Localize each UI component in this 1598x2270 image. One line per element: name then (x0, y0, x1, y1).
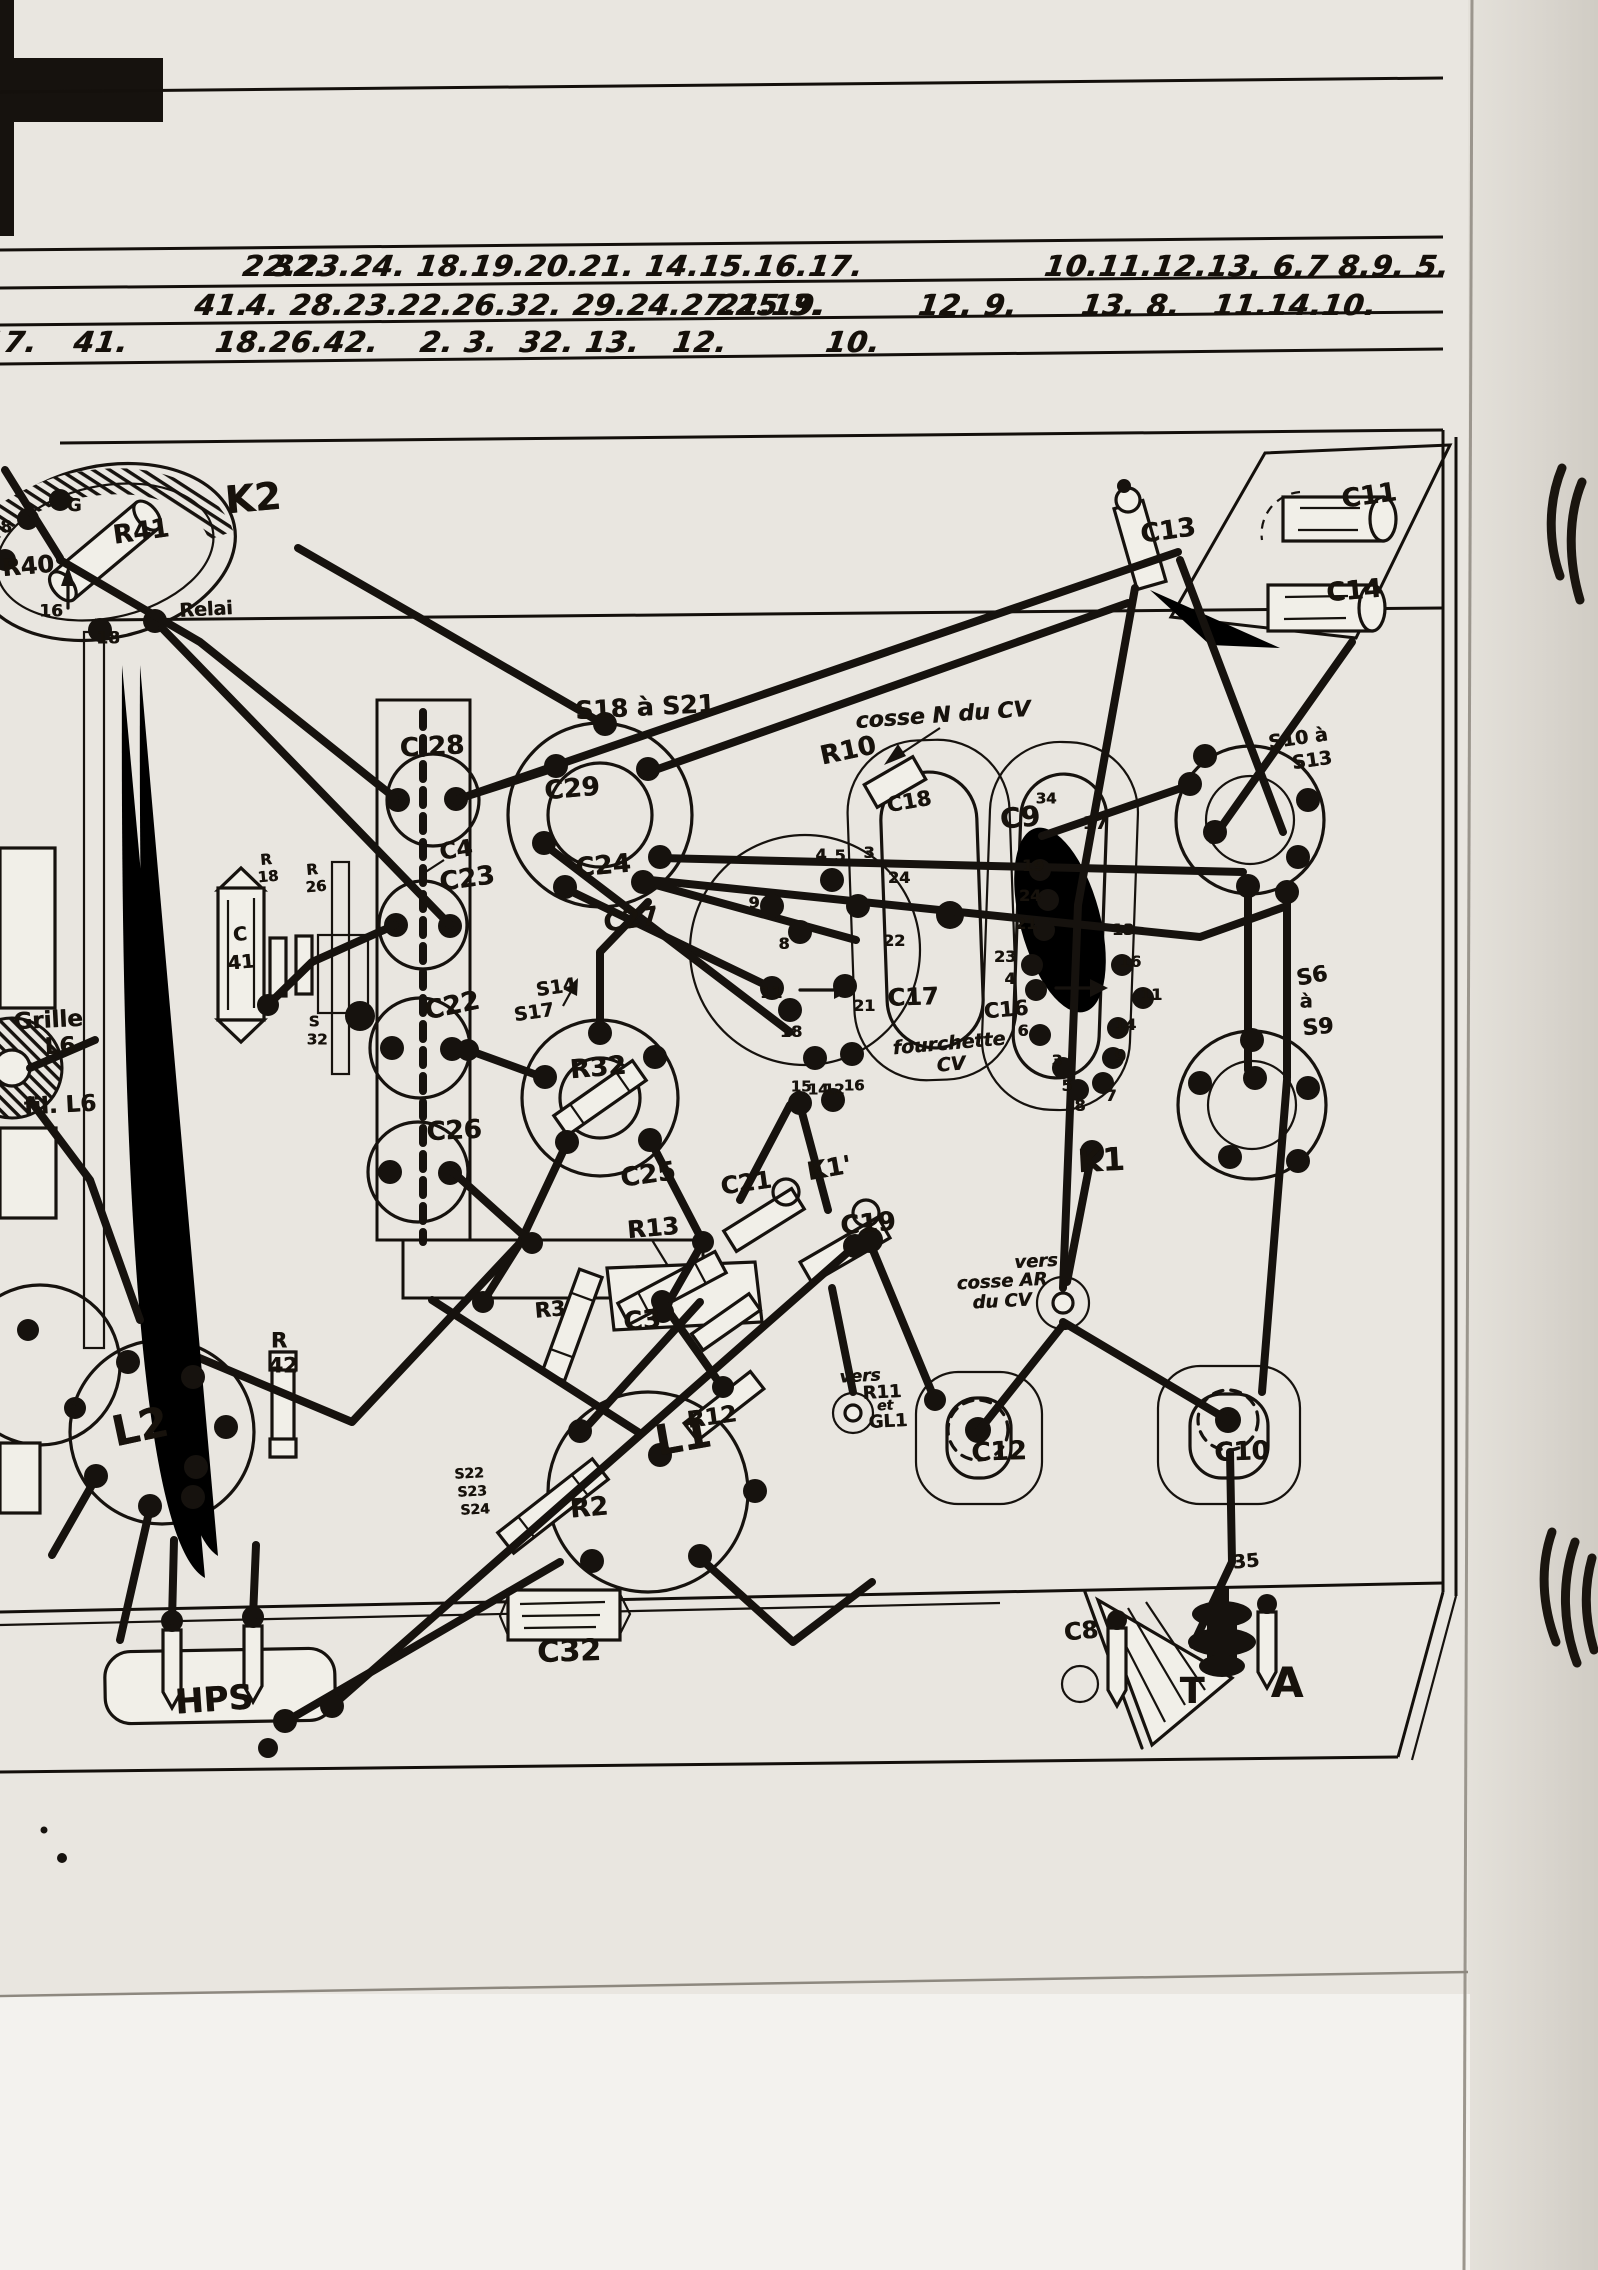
component-label: R13 (626, 1214, 680, 1242)
pin-label: 14 (1114, 1017, 1136, 1033)
component-label: R2 (569, 1493, 609, 1522)
component-label: C19 (839, 1209, 896, 1240)
component-label: R41 (111, 515, 170, 549)
pin-label: 3 (1051, 1053, 1062, 1069)
component-label: L6 (44, 1035, 76, 1060)
pin-label: 21 (1015, 916, 1037, 932)
header-number: 12. 9. (916, 288, 1019, 322)
component-label: S18 à S21 (575, 691, 716, 723)
capacitor-c32 (500, 1590, 630, 1640)
binding-marks (1544, 468, 1594, 1663)
component-label: S24 (460, 1502, 490, 1518)
component-label: R (306, 862, 319, 878)
header-number: 10. (823, 325, 882, 359)
component-label: C 28 (399, 732, 465, 761)
scanned-schematic-page: .w{stroke:#16120e;stroke-width:8;fill:no… (0, 0, 1598, 2270)
component-label: C25 (619, 1158, 677, 1191)
component-label: 35 (1232, 1551, 1260, 1572)
component-label: S (309, 1015, 320, 1030)
component-label: 41 (227, 952, 255, 973)
component-label: S23 (457, 1484, 487, 1500)
pin-label: 11 (760, 985, 782, 1001)
component-label: Grille (13, 1008, 84, 1035)
pin-label: 5 (834, 848, 845, 864)
header-number: 17. (0, 325, 40, 359)
pin-label: 9 (1114, 1048, 1127, 1066)
component-label: L2 (108, 1401, 172, 1454)
pin-label: 18 (780, 1024, 802, 1040)
component-label: C11 (1340, 479, 1398, 512)
pin-label: 19 (1022, 858, 1044, 874)
component-label: S22 (454, 1466, 484, 1482)
component-label: fil. L6 (23, 1093, 96, 1120)
pin-label: 17 (1082, 815, 1107, 833)
pin-label: 6 (1017, 1023, 1028, 1039)
header-number: 2. 3. 32. 13. (418, 325, 642, 359)
pin-label: 13 (1112, 922, 1134, 938)
pin-label: 11 (1140, 987, 1162, 1003)
component-label: C (232, 925, 248, 945)
component-label: 8 (0, 520, 12, 537)
component-label: C27 (602, 903, 660, 936)
component-label: R40 (1, 552, 55, 580)
component-label: K1' (805, 1152, 853, 1184)
component-label: C26 (426, 1117, 483, 1146)
pin-label: 9 (748, 895, 759, 911)
component-label: du CV (972, 1291, 1032, 1312)
component-label: C17 (887, 984, 939, 1010)
component-label: S9 (1302, 1016, 1335, 1041)
component-label: C10 (1214, 1438, 1270, 1466)
component-label: C29 (543, 774, 600, 805)
header-number: 21.19. (715, 288, 829, 322)
header-number: 18.26.42. (213, 325, 381, 359)
component-label: C4 (438, 837, 474, 864)
pin-label: 16 (1119, 954, 1141, 970)
component-label: 32 (307, 1033, 328, 1048)
component-label: 42 (268, 1356, 297, 1377)
component-label: CV (936, 1054, 966, 1075)
pin-label: 4 (1004, 971, 1015, 987)
component-label: C14 (1325, 576, 1382, 607)
pin-label: 5 (1061, 1078, 1072, 1094)
pin-label: 12 (824, 1083, 845, 1098)
component-label: L1 (652, 1411, 714, 1462)
pin-label: 7 (1105, 1088, 1116, 1104)
component-label: A (1271, 1662, 1304, 1704)
component-label: HPS (174, 1680, 254, 1719)
header-number: 41. (192, 288, 251, 322)
component-label: C23 (438, 862, 496, 895)
header-number: 12. (670, 325, 729, 359)
component-label: 26 (305, 879, 327, 896)
pin-label: 8 (778, 936, 789, 952)
component-label: R3 (534, 1298, 567, 1322)
pin-label: 8 (1074, 1098, 1085, 1114)
component-label: C13 (1139, 514, 1197, 547)
component-label: Relai (179, 599, 233, 621)
pin-label: 22 (883, 933, 905, 949)
component-label: 18 (257, 869, 279, 886)
component-label: C24 (574, 851, 631, 882)
header-number: 22.23.24. 18.19.20.21. 14.15.16.17. (240, 249, 865, 283)
pin-label: 4 (815, 847, 826, 863)
component-label: S6 (1295, 963, 1330, 990)
component-label: 16 (39, 604, 63, 621)
component-label: C12 (971, 1438, 1027, 1466)
component-label: R32 (569, 1053, 627, 1084)
component-label: K1 (1077, 1143, 1126, 1177)
component-label: G (67, 497, 82, 515)
pin-label: 21 (853, 998, 875, 1014)
pin-label: 24 (888, 870, 910, 886)
component-label: R (271, 1331, 287, 1352)
component-label: R (260, 852, 273, 868)
pin-label: 23 (994, 949, 1016, 965)
component-label: GL1 (868, 1412, 908, 1432)
pin-label: 34 (1036, 792, 1057, 807)
pin-label: 3 (863, 845, 874, 861)
component-label: C8 (1063, 1618, 1099, 1645)
component-label: T (1180, 1674, 1205, 1710)
terminal-strip (345, 700, 703, 1298)
header-number: 41. (71, 325, 130, 359)
component-label: C32 (537, 1636, 602, 1668)
header-number: 10.11.12.13. 6.7 8.9. 5. (1042, 249, 1452, 283)
pin-label: 24 (1019, 888, 1041, 904)
component-label: 18 (96, 631, 120, 648)
component-label: C3 (622, 1306, 661, 1335)
pin-label: 16 (844, 1079, 865, 1094)
component-label: K2 (224, 477, 283, 520)
component-label: C16 (983, 998, 1029, 1023)
header-number: 13. 8. 11.14.10. (1079, 288, 1379, 322)
component-label: C21 (719, 1168, 773, 1199)
component-label: à (1300, 993, 1313, 1012)
